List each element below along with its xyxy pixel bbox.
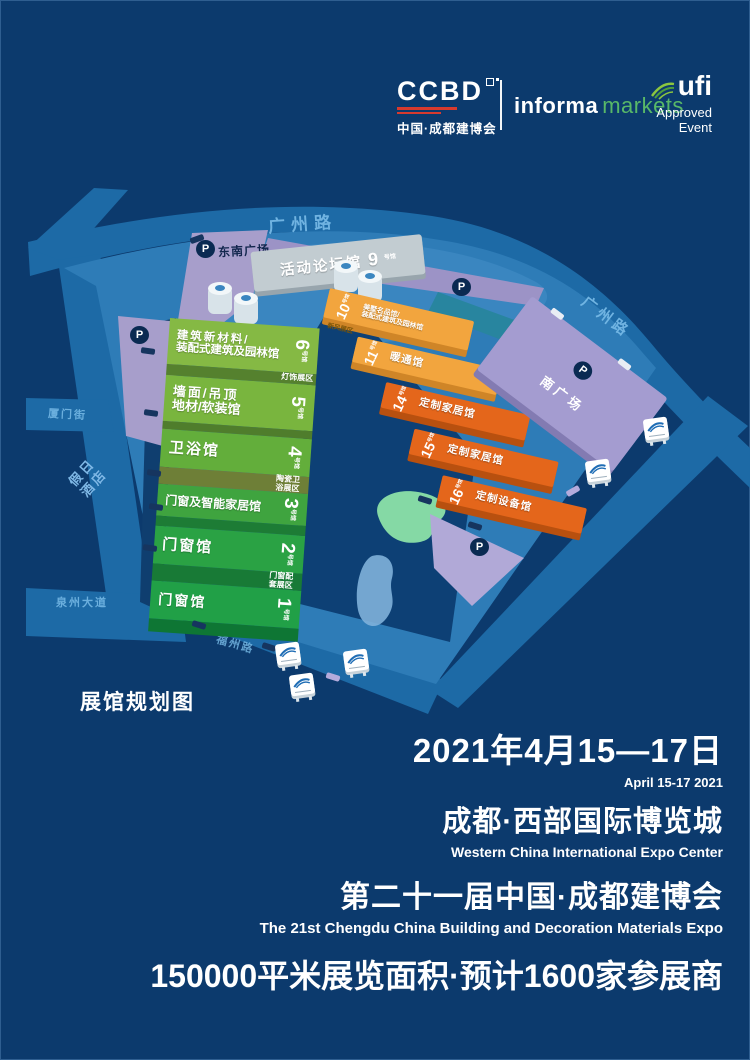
parking-icon: P <box>470 538 489 556</box>
hall-10-number: 10号馆 <box>333 292 357 321</box>
venue-name-cn: 成都·西部国际博览城 <box>150 798 723 840</box>
hall-6-number: 6号馆 <box>292 338 313 362</box>
event-date-en: April 15-17 2021 <box>150 775 723 790</box>
metro-logo-icon <box>587 461 608 476</box>
metro-sign-caption <box>349 665 365 669</box>
metro-logo-icon <box>345 651 366 666</box>
map-title: 展馆规划图 <box>80 686 195 716</box>
hall-16-name: 定制设备馆 <box>474 491 533 515</box>
metro-logo-icon <box>277 644 298 659</box>
hall-4-name: 卫浴馆 <box>168 440 283 464</box>
hall-11-name: 暖通馆 <box>389 352 425 370</box>
tower-cylinder <box>208 288 232 314</box>
metro-logo-icon <box>291 675 312 690</box>
hall-2-name: 门窗馆 <box>162 537 277 561</box>
green-hall-column: 建筑新材料/装配式建筑及园林馆 6号馆 灯饰展区 墙面/吊顶地材/软装馆 5号馆… <box>148 318 320 642</box>
hall-16-number: 16号馆 <box>446 478 470 507</box>
metro-entrance-sign <box>585 458 612 482</box>
parking-icon: P <box>196 240 215 258</box>
metro-entrance-sign <box>275 641 302 665</box>
metro-sign-caption <box>295 689 311 693</box>
event-date-cn: 2021年4月15—17日 <box>150 724 723 772</box>
event-name-en: The 21st Chengdu China Building and Deco… <box>150 920 723 937</box>
hall-14-number: 14号馆 <box>390 384 414 413</box>
road-label-guangzhou-top: 广州路 <box>267 208 338 238</box>
hall-15: 15号馆 定制家居馆 <box>409 429 559 488</box>
hall-11-number: 11号馆 <box>361 339 384 367</box>
hall-15-number: 15号馆 <box>418 431 442 460</box>
parking-icon: P <box>130 326 149 344</box>
hall-2-number: 2号馆 <box>277 542 298 566</box>
road-label-quanzhou: 泉州大道 <box>56 594 108 610</box>
venue-name-en: Western China International Expo Center <box>150 844 723 860</box>
metro-entrance-sign <box>289 672 316 696</box>
hall-9-number: 9 <box>367 248 379 270</box>
event-info-block: 2021年4月15—17日 April 15-17 2021 成都·西部国际博览… <box>150 724 723 997</box>
poster: CCBD 中国·成都建博会 informamarkets ufi Approve… <box>0 0 750 1060</box>
parking-icon: P <box>452 278 471 296</box>
hall-14-name: 定制家居馆 <box>418 398 477 422</box>
hall-15-name: 定制家居馆 <box>446 444 505 468</box>
road-label-xiamen: 厦门街 <box>48 405 88 423</box>
hall-1-number: 1号馆 <box>273 597 294 621</box>
metro-sign-caption <box>281 658 297 662</box>
tower-cylinder <box>334 266 358 292</box>
door-window-zone-label: 门窗配套展区 <box>268 571 302 591</box>
hall-9-suffix: 号馆 <box>384 254 397 262</box>
hall-3-name: 门窗及智能家居馆 <box>165 494 280 515</box>
ceramic-zone-label: 陶瓷卫浴展区 <box>275 475 309 495</box>
parking-icon: P <box>570 358 596 384</box>
metro-entrance-sign <box>343 648 370 672</box>
hall-3-number: 3号馆 <box>280 497 301 521</box>
tower-cylinder <box>234 298 258 324</box>
metro-logo-icon <box>645 419 666 434</box>
metro-entrance-sign <box>643 416 670 440</box>
event-name-cn: 第二十一届中国·成都建博会 <box>150 872 723 916</box>
metro-sign-caption <box>591 475 607 479</box>
event-stats: 150000平米展览面积·预计1600家参展商 <box>150 951 723 997</box>
hall-1-name: 门窗馆 <box>158 592 273 615</box>
metro-sign-caption <box>649 433 665 437</box>
